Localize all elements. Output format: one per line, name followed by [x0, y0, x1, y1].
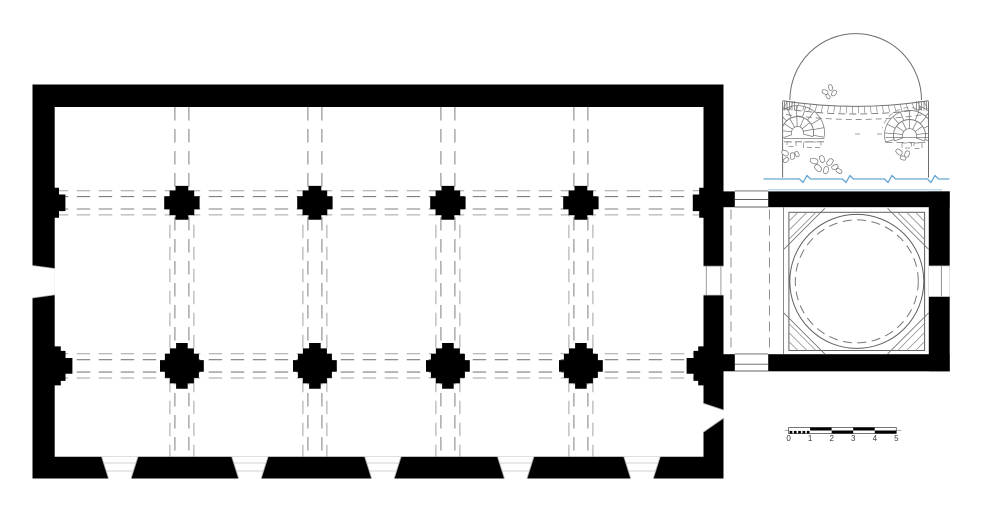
svg-text:0: 0	[786, 434, 791, 443]
svg-text:1: 1	[808, 434, 813, 443]
svg-text:5: 5	[894, 434, 899, 443]
svg-text:4: 4	[873, 434, 878, 443]
svg-text:3: 3	[851, 434, 856, 443]
svg-text:2: 2	[829, 434, 834, 443]
